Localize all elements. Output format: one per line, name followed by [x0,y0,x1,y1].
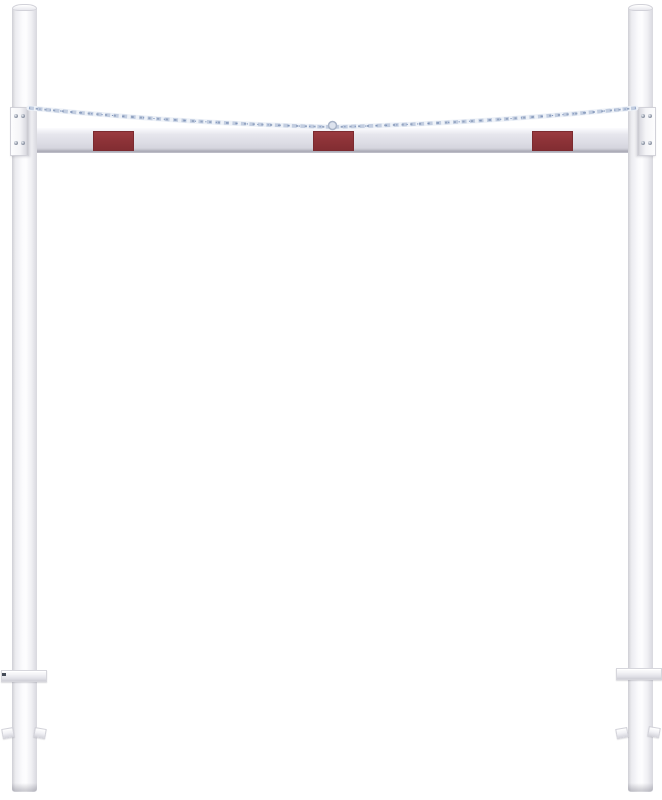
anchor-lug-left-post-outer [1,727,15,739]
height-barrier-product-image [0,0,662,800]
ground-plate-left [1,670,47,682]
plate-hole [2,673,6,676]
chain-connector-ring [329,122,337,130]
suspension-chains [0,95,662,155]
anchor-lug-left-post-inner [33,727,47,739]
anchor-lug-right-post-inner [615,727,629,739]
chain-left [29,108,331,127]
anchor-lug-right-post-outer [647,726,661,738]
chain-right [334,108,636,127]
ground-plate-right [616,668,662,680]
